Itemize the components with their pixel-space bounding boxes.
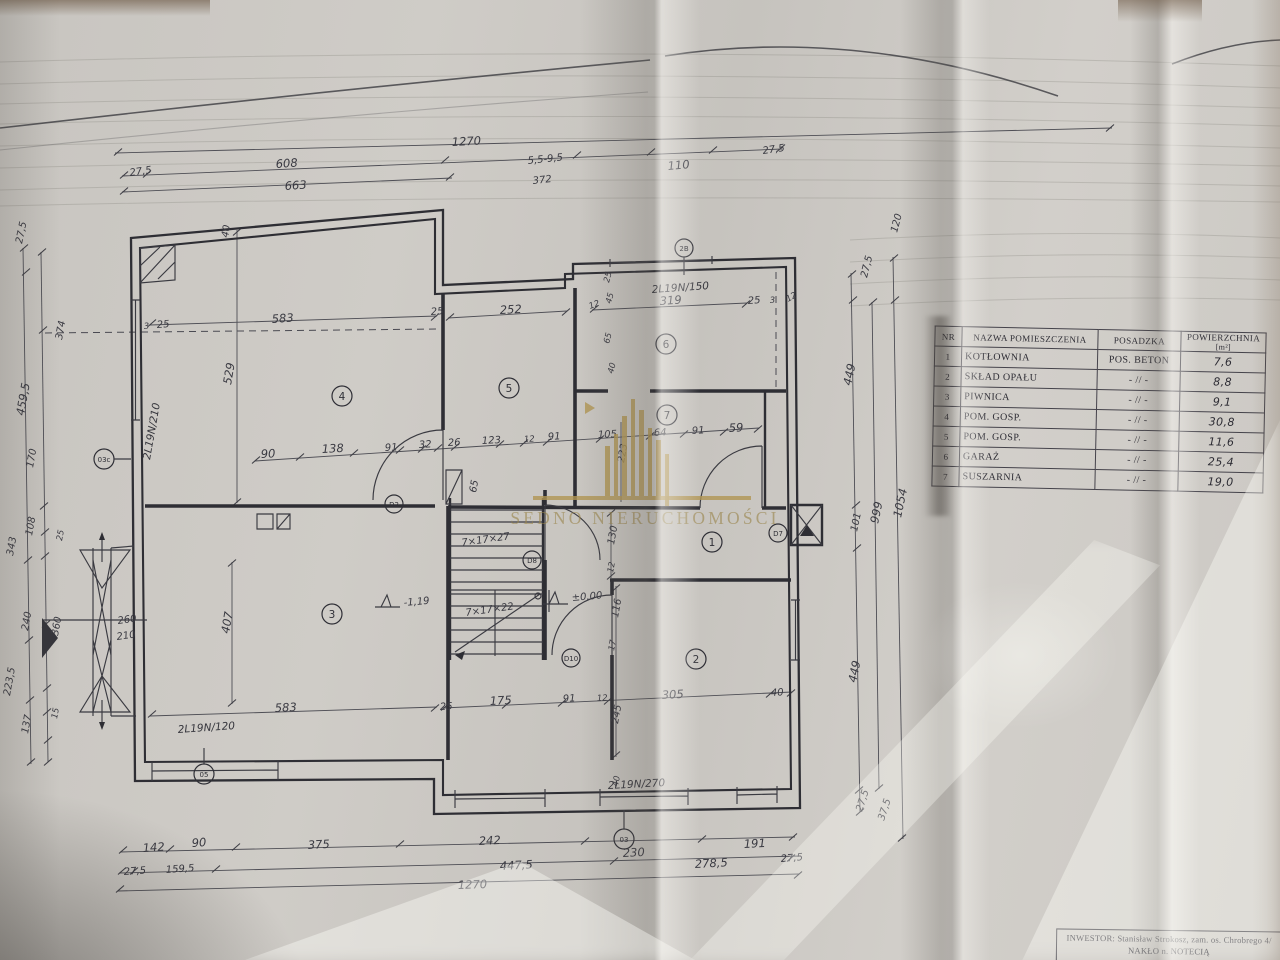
dim-label: 245 xyxy=(610,704,624,725)
investor-line2: NAKŁO n. NOTECIĄ xyxy=(1057,944,1280,960)
room-number: 6 xyxy=(663,339,670,351)
cell-floor: - // - xyxy=(1097,389,1180,411)
dim-label: 91 xyxy=(548,431,561,443)
door-label: D8 xyxy=(527,557,537,565)
wall-fixtures xyxy=(257,470,462,529)
room-number: 1 xyxy=(709,537,716,549)
room-badge-3: 3 xyxy=(322,604,342,624)
marker-label: 03 xyxy=(620,836,629,844)
cell-floor: - // - xyxy=(1095,449,1178,471)
dim-label: 15 xyxy=(50,707,62,719)
dim-label: 32 xyxy=(419,439,432,451)
room-badge-7: 7 xyxy=(657,405,677,425)
dim-label: 25 xyxy=(440,701,453,713)
cell-name: GARAŻ xyxy=(959,447,1095,470)
dim-label: 449 xyxy=(840,362,858,386)
level-label: ±0,00 xyxy=(571,590,602,604)
dim-label: 12 xyxy=(597,693,608,704)
dim-label: 240 xyxy=(20,611,34,632)
dim-label: 5,5-9,5 xyxy=(527,152,563,167)
dim-label: 27,5 xyxy=(129,165,153,179)
dim-label: 40 xyxy=(606,362,618,375)
dim-label: 170 xyxy=(25,448,39,469)
cell-lp: 2 xyxy=(934,366,961,387)
cell-lp: 1 xyxy=(934,346,961,367)
dim-label: 17 xyxy=(607,639,619,652)
dim-label: 529 xyxy=(220,361,238,385)
lintel-labels: 2L19N/210 2L19N/150 2L19N/120 2L19N/270 xyxy=(141,280,710,792)
dim-label: 372 xyxy=(532,174,552,187)
dim-label: 91 xyxy=(385,442,398,454)
room-badge-1: 1 xyxy=(702,532,722,552)
dim-label: 459,5 xyxy=(13,382,33,417)
section-markers: 2B 03c 05 03 xyxy=(94,239,693,849)
dim-label: 407 xyxy=(218,610,236,635)
dim-label: 343 xyxy=(5,536,19,557)
marker-label: 05 xyxy=(200,771,209,779)
door-label: D2 xyxy=(389,501,399,509)
dim-label: 91 xyxy=(692,425,705,437)
dim-label: 101 xyxy=(849,512,864,533)
room-number: 3 xyxy=(329,609,336,621)
cell-area: 19,0 xyxy=(1178,471,1263,493)
dim-label: 175 xyxy=(489,693,512,708)
marker-03c: 03c xyxy=(94,449,131,469)
dim-label: 138 xyxy=(321,441,344,456)
cell-name: PIWNICA xyxy=(961,387,1097,410)
dim-label: 252 xyxy=(499,302,522,317)
dim-label: 116 xyxy=(610,598,624,619)
investor-stamp: INWESTOR: Stanisław Strokosz, zam. os. C… xyxy=(1056,928,1280,960)
lintel-label: 2L19N/210 xyxy=(141,402,163,461)
dim-label: 1270 xyxy=(458,877,488,892)
room-badge-5: 5 xyxy=(499,378,519,398)
cell-name: POM. GOSP. xyxy=(960,407,1096,430)
dim-label: 1270 xyxy=(451,133,481,149)
dim-label: 45 xyxy=(604,292,616,305)
dim-label: 663 xyxy=(284,177,307,192)
dim-label: 25 xyxy=(747,295,760,307)
marker-05: 05 xyxy=(194,748,214,784)
dim-label: 449 xyxy=(845,659,863,683)
dim-label: 142 xyxy=(142,839,165,854)
dim-label: 375 xyxy=(307,837,330,852)
dim-label: 3 xyxy=(770,296,776,306)
door-marker-d8: D8 xyxy=(523,551,541,569)
cell-floor: - // - xyxy=(1096,429,1179,451)
paper-guide-lines xyxy=(0,54,1280,306)
dim-label: 123 xyxy=(482,435,502,447)
dim-label: 3 xyxy=(144,322,150,332)
stairs-main xyxy=(450,498,543,660)
dim-label: 105 xyxy=(598,429,618,441)
dim-label: 64 xyxy=(654,427,667,439)
dim-label: 26 xyxy=(448,437,461,449)
cell-area: 11,6 xyxy=(1179,431,1264,453)
dim-label: 27,5 xyxy=(859,254,875,278)
marker-label: 2B xyxy=(679,245,688,253)
header-floor: POSADZKA xyxy=(1098,329,1181,351)
marker-label: 03c xyxy=(98,456,111,464)
dim-label: 191 xyxy=(743,836,766,851)
door-label: D7 xyxy=(773,530,783,538)
level-label: -1,19 xyxy=(403,596,430,609)
room-badge-4: 4 xyxy=(332,386,352,406)
dim-label: 40 xyxy=(220,224,233,238)
header-lp: NR xyxy=(935,326,962,347)
cell-lp: 6 xyxy=(932,446,959,467)
cell-area: 7,6 xyxy=(1180,351,1265,373)
paper-edge-curves xyxy=(0,40,1280,150)
cell-area: 9,1 xyxy=(1179,391,1264,413)
dim-label: 12 xyxy=(524,434,535,445)
dim-label: 278,5 xyxy=(694,855,728,871)
cell-area: 25,4 xyxy=(1178,451,1263,473)
dim-label: 91 xyxy=(563,693,576,705)
lintel-label: 2L19N/150 xyxy=(651,280,709,296)
dim-label: 374 xyxy=(54,320,68,341)
dim-label: 223 xyxy=(616,443,630,464)
cell-area: 8,8 xyxy=(1180,371,1265,393)
cell-lp: 5 xyxy=(933,426,960,447)
room-number: 7 xyxy=(664,410,671,422)
cell-lp: 4 xyxy=(933,406,960,427)
dim-label: 27,5 xyxy=(14,221,29,245)
dim-label: 25 xyxy=(156,319,169,331)
cell-name: SUSZARNIA xyxy=(959,467,1095,490)
cell-lp: 3 xyxy=(934,386,961,407)
dim-label: 583 xyxy=(274,700,297,715)
dim-label: 27,5 xyxy=(762,143,786,157)
chimney-block xyxy=(791,505,822,545)
door-marker-d10: D10 xyxy=(562,649,580,667)
dim-label: 110 xyxy=(667,157,690,173)
door-marker-d7: D7 xyxy=(769,524,787,542)
dimension-labels: 1270 27,5 608 663 5,5-9,5 372 110 27,5 1… xyxy=(2,133,910,892)
lintel-label: 2L19N/270 xyxy=(608,777,666,792)
dim-label: 65 xyxy=(468,479,481,493)
dim-label: 27,5 xyxy=(123,865,146,878)
cell-floor: - // - xyxy=(1096,409,1179,431)
room-number: 4 xyxy=(339,391,346,403)
dim-label: 40 xyxy=(771,687,784,699)
interior-walls xyxy=(145,288,791,760)
dim-label: 65 xyxy=(602,332,614,345)
room-schedule-table: NR NAZWA POMIESZCZENIA POSADZKA POWIERZC… xyxy=(931,326,1266,494)
dim-label: 305 xyxy=(661,687,684,702)
cell-floor: - // - xyxy=(1095,469,1178,491)
dim-label: 120 xyxy=(889,212,905,233)
dim-label: 108 xyxy=(24,516,38,537)
dim-label: 1054 xyxy=(890,487,910,519)
cell-floor: - // - xyxy=(1097,369,1180,391)
dim-label: 159,5 xyxy=(165,863,194,876)
dim-label: 130 xyxy=(606,525,620,546)
dim-label: 137 xyxy=(20,713,34,734)
cell-lp: 7 xyxy=(932,466,959,487)
cell-area: 30,8 xyxy=(1179,411,1264,433)
dim-label: 37,5 xyxy=(876,797,893,822)
marker-03: 03 xyxy=(614,810,634,849)
dim-label: 999 xyxy=(867,500,885,524)
dim-label: 25 xyxy=(430,306,443,318)
room-badge-6: 6 xyxy=(656,334,676,354)
cell-floor: POS. BETON xyxy=(1097,349,1180,371)
header-area: POWIERZCHNIA[m²] xyxy=(1181,331,1266,353)
dim-label: 242 xyxy=(478,833,501,848)
room-badge-2: 2 xyxy=(686,649,706,669)
corner-hatch xyxy=(140,245,175,283)
cell-name: SKŁAD OPAŁU xyxy=(961,367,1097,390)
dim-label: 583 xyxy=(271,310,294,325)
cell-name: KOTŁOWNIA xyxy=(961,347,1097,370)
dim-label: 90 xyxy=(191,835,207,850)
door-label: D10 xyxy=(564,655,578,663)
dim-label: 223,5 xyxy=(2,666,18,696)
dim-label: 59 xyxy=(728,420,743,435)
dim-label: 27,5 xyxy=(780,852,803,865)
floor-plan-photo: -1,19 ±0,00 1270 27,5 608 663 5,5-9,5 37… xyxy=(0,0,1280,960)
dim-label: 12 xyxy=(606,561,618,573)
dim-label: 90 xyxy=(260,446,275,461)
room-number: 2 xyxy=(693,654,700,666)
door-marker-d2: D2 xyxy=(385,495,403,513)
dim-label: 608 xyxy=(275,155,298,170)
cell-name: POM. GOSP. xyxy=(960,427,1096,450)
dim-label: 230 xyxy=(622,845,645,860)
room-number-badges: 4 5 6 7 1 2 3 xyxy=(322,334,722,669)
room-number: 5 xyxy=(506,383,513,395)
dim-label: 25 xyxy=(55,529,67,541)
dim-label: 447,5 xyxy=(499,857,533,873)
door-arcs xyxy=(373,430,762,655)
lintel-label: 2L19N/120 xyxy=(177,720,235,736)
header-name: NAZWA POMIESZCZENIA xyxy=(962,327,1098,350)
dim-label: 360 xyxy=(50,616,64,637)
